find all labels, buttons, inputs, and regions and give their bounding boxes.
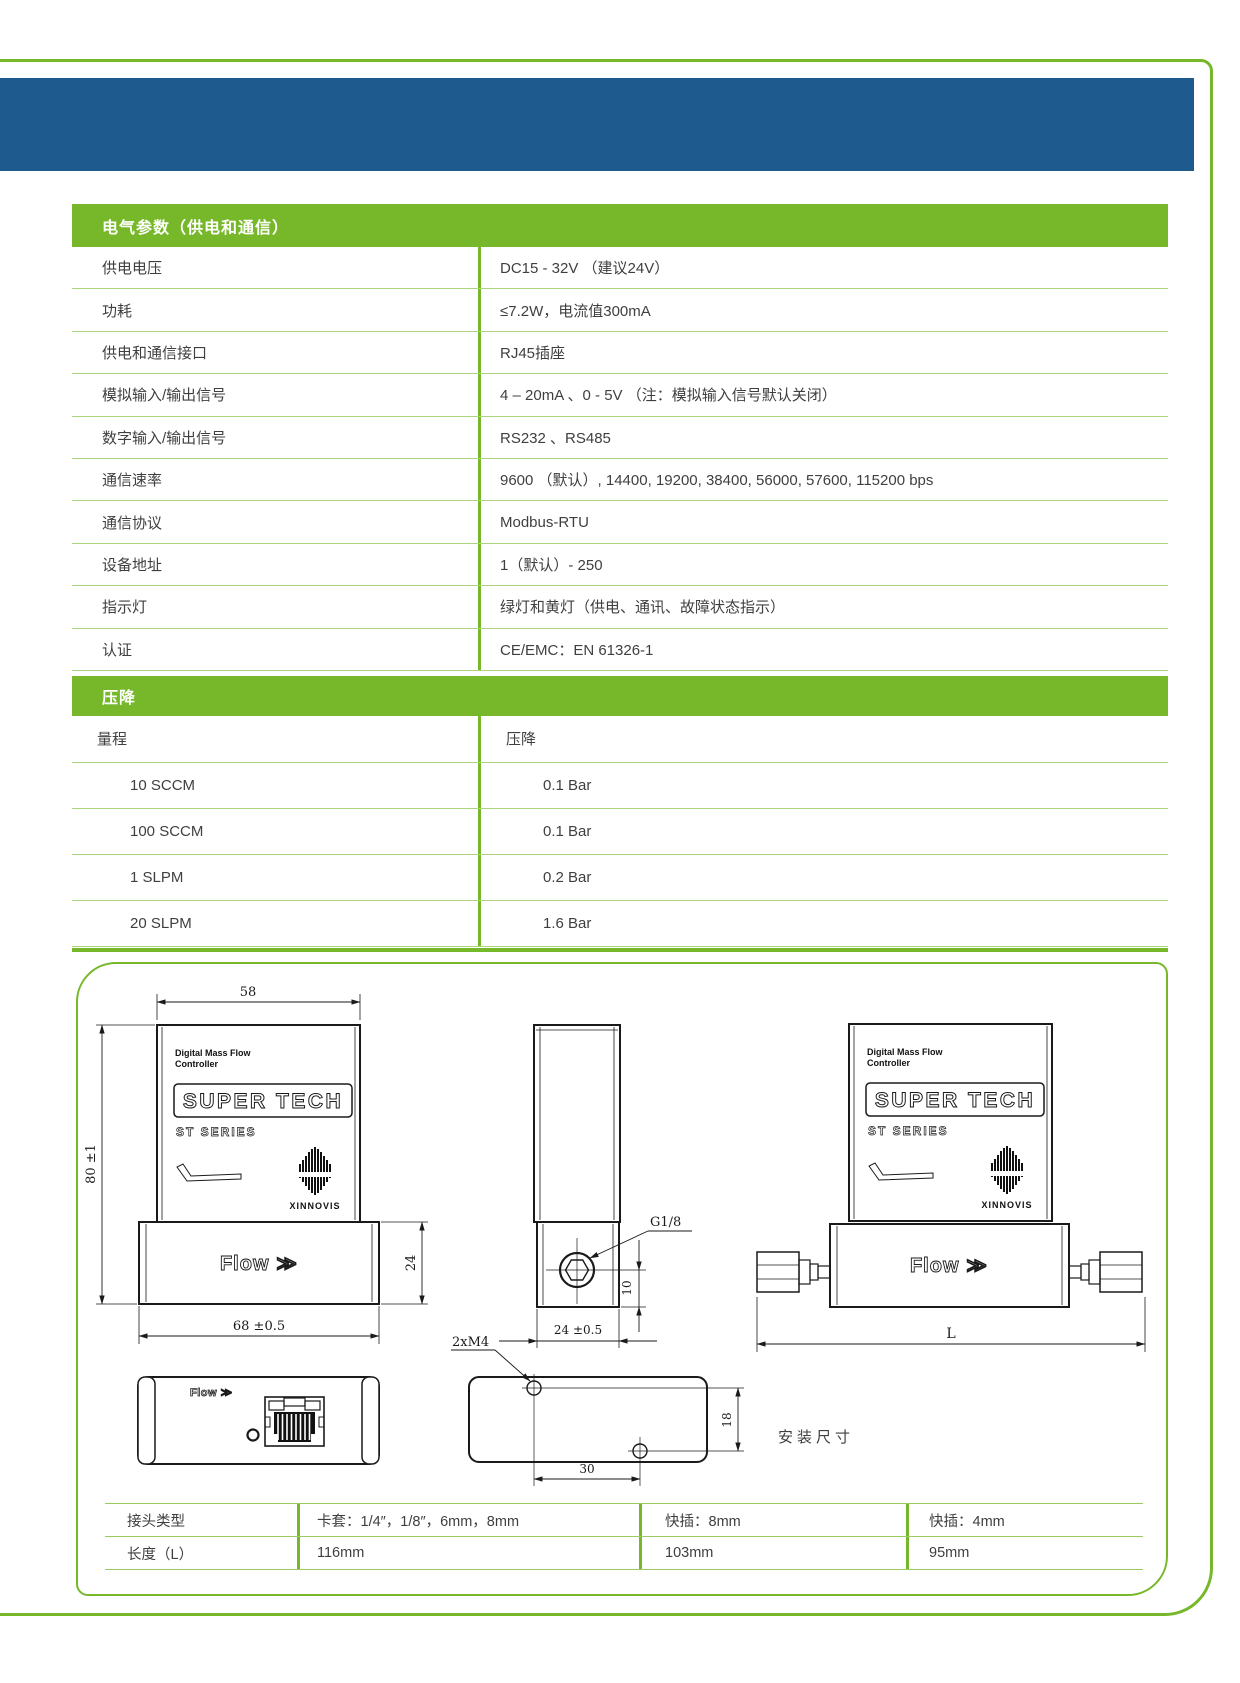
table-bottom-rule [72, 948, 1168, 952]
row-label: 通信速率 [72, 459, 478, 500]
flow-direction-logo: Flow ≫ [910, 1255, 988, 1277]
starburst-logo-icon [294, 1147, 336, 1195]
row-label: 通信协议 [72, 501, 478, 542]
table-row: 100 SCCM 0.1 Bar [72, 809, 1168, 855]
rear-view: Flow ≫ [138, 1377, 379, 1464]
front-view: Digital Mass Flow Controller SUPER TECH … [84, 985, 428, 1344]
faceplate-text-line1: Digital Mass Flow [175, 1048, 252, 1058]
row-label: 供电和通信接口 [72, 332, 478, 373]
row-value: 9600 （默认）, 14400, 19200, 38400, 56000, 5… [481, 459, 1168, 500]
dim-80: 80 ±1 [84, 1025, 155, 1304]
row-value: ≤7.2W，电流值300mA [481, 289, 1168, 330]
dim-24-width: 24 ±0.5 [499, 1309, 657, 1348]
table-row: 长度（L） 116mm 103mm 95mm [105, 1537, 1143, 1570]
drop-value: 0.1 Bar [481, 809, 1168, 854]
row-value: DC15 - 32V （建议24V） [481, 247, 1168, 288]
range-value: 20 SLPM [72, 901, 478, 946]
svg-text:58: 58 [240, 985, 257, 1000]
dim-58: 58 [157, 985, 360, 1020]
row-label: 功耗 [72, 289, 478, 330]
table-row: 通信速率 9600 （默认）, 14400, 19200, 38400, 560… [72, 459, 1168, 501]
range-value: 100 SCCM [72, 809, 478, 854]
section-title: 电气参数（供电和通信） [102, 214, 289, 238]
row-label: 指示灯 [72, 586, 478, 627]
dim-68: 68 ±0.5 [139, 1306, 379, 1344]
drop-value: 0.1 Bar [481, 763, 1168, 808]
flow-direction-logo: Flow ≫ [220, 1253, 298, 1275]
datasheet-page: 电气参数（供电和通信） 供电电压 DC15 - 32V （建议24V） 功耗 ≤… [0, 0, 1240, 1683]
compression-fitting-left [757, 1252, 830, 1292]
row-value: CE/EMC：EN 61326-1 [481, 629, 1168, 670]
row-value: RS232 、RS485 [481, 417, 1168, 458]
length-value: 95mm [906, 1537, 1143, 1569]
svg-text:24 ±0.5: 24 ±0.5 [554, 1323, 602, 1337]
rj45-socket [265, 1397, 324, 1446]
row-label: 模拟输入/输出信号 [72, 374, 478, 415]
section-header-electrical: 电气参数（供电和通信） [72, 204, 1168, 247]
col-header-range: 量程 [72, 716, 478, 762]
swoosh-mark [177, 1164, 241, 1181]
svg-text:2xM4: 2xM4 [452, 1335, 489, 1350]
table-row: 1 SLPM 0.2 Bar [72, 855, 1168, 901]
install-dimensions-label: 安装尺寸 [778, 1429, 854, 1446]
table-row: 设备地址 1（默认）- 250 [72, 544, 1168, 586]
st-series-label: ST SERIES [176, 1125, 257, 1139]
bottom-view: 2xM4 30 18 [451, 1335, 744, 1486]
mounting-hole-1 [522, 1374, 546, 1486]
dim-10: 10 [620, 1240, 646, 1332]
fitting-option: 快插：4mm [906, 1504, 1143, 1536]
fitting-option: 快插：8mm [639, 1504, 906, 1536]
table-row: 指示灯 绿灯和黄灯（供电、通讯、故障状态指示） [72, 586, 1168, 628]
row-value: 绿灯和黄灯（供电、通讯、故障状态指示） [481, 586, 1168, 627]
connector-table: 接头类型 卡套：1/4″，1/8″，6mm，8mm 快插：8mm 快插：4mm … [105, 1503, 1143, 1570]
row-value: Modbus-RTU [481, 501, 1168, 542]
compression-fitting-right [1069, 1252, 1142, 1292]
drop-value: 1.6 Bar [481, 901, 1168, 946]
table-row: 认证 CE/EMC：EN 61326-1 [72, 629, 1168, 671]
row-label: 接头类型 [105, 1504, 297, 1536]
range-value: 1 SLPM [72, 855, 478, 900]
flow-direction-logo-small: Flow ≫ [190, 1387, 233, 1399]
dim-18: 18 [546, 1388, 744, 1451]
svg-text:L: L [946, 1326, 955, 1342]
dim-L: L [757, 1297, 1145, 1352]
col-header-drop: 压降 [481, 716, 1168, 762]
table-row: 供电电压 DC15 - 32V （建议24V） [72, 247, 1168, 289]
row-label: 设备地址 [72, 544, 478, 585]
drop-value: 0.2 Bar [481, 855, 1168, 900]
table-row: 接头类型 卡套：1/4″，1/8″，6mm，8mm 快插：8mm 快插：4mm [105, 1503, 1143, 1537]
svg-text:G1/8: G1/8 [650, 1215, 681, 1230]
side-view: G1/8 10 [499, 1025, 692, 1348]
dimension-drawing-panel: Digital Mass Flow Controller SUPER TECH … [76, 962, 1168, 1596]
row-value: RJ45插座 [481, 332, 1168, 373]
section-title: 压降 [102, 684, 136, 708]
row-value: 1（默认）- 250 [481, 544, 1168, 585]
table-row: 供电和通信接口 RJ45插座 [72, 332, 1168, 374]
table-row: 10 SCCM 0.1 Bar [72, 763, 1168, 809]
technical-drawing: Digital Mass Flow Controller SUPER TECH … [78, 964, 1166, 1564]
svg-text:30: 30 [579, 1462, 594, 1476]
row-value: 4 – 20mA 、0 - 5V （注：模拟输入信号默认关闭） [481, 374, 1168, 415]
table-header-row: 量程 压降 [72, 716, 1168, 763]
top-blue-banner [0, 78, 1194, 171]
svg-text:80 ±1: 80 ±1 [84, 1144, 99, 1184]
label-2xM4: 2xM4 [451, 1335, 530, 1381]
dim-30: 30 [534, 1462, 640, 1479]
spec-tables: 电气参数（供电和通信） 供电电压 DC15 - 32V （建议24V） 功耗 ≤… [72, 204, 1168, 952]
super-tech-logo: SUPER TECH [183, 1090, 343, 1113]
svg-text:10: 10 [620, 1280, 634, 1295]
table-row: 通信协议 Modbus-RTU [72, 501, 1168, 543]
row-label: 数字输入/输出信号 [72, 417, 478, 458]
length-value: 116mm [297, 1537, 639, 1569]
row-label: 供电电压 [72, 247, 478, 288]
row-label: 认证 [72, 629, 478, 670]
table-row: 模拟输入/输出信号 4 – 20mA 、0 - 5V （注：模拟输入信号默认关闭… [72, 374, 1168, 416]
front-view-with-fittings: Flow ≫ [757, 1024, 1145, 1352]
row-label: 长度（L） [105, 1537, 297, 1569]
range-value: 10 SCCM [72, 763, 478, 808]
fitting-option: 卡套：1/4″，1/8″，6mm，8mm [297, 1504, 639, 1536]
svg-text:24: 24 [404, 1255, 419, 1272]
section-header-pressure-drop: 压降 [72, 676, 1168, 716]
dim-24-height: 24 [381, 1222, 428, 1304]
table-row: 20 SLPM 1.6 Bar [72, 901, 1168, 947]
table-row: 功耗 ≤7.2W，电流值300mA [72, 289, 1168, 331]
status-led [248, 1430, 259, 1441]
faceplate-text-line2: Controller [175, 1059, 218, 1069]
maker-name: XINNOVIS [289, 1201, 340, 1211]
table-row: 数字输入/输出信号 RS232 、RS485 [72, 417, 1168, 459]
length-value: 103mm [639, 1537, 906, 1569]
svg-text:18: 18 [720, 1412, 734, 1427]
svg-text:68 ±0.5: 68 ±0.5 [233, 1319, 285, 1334]
